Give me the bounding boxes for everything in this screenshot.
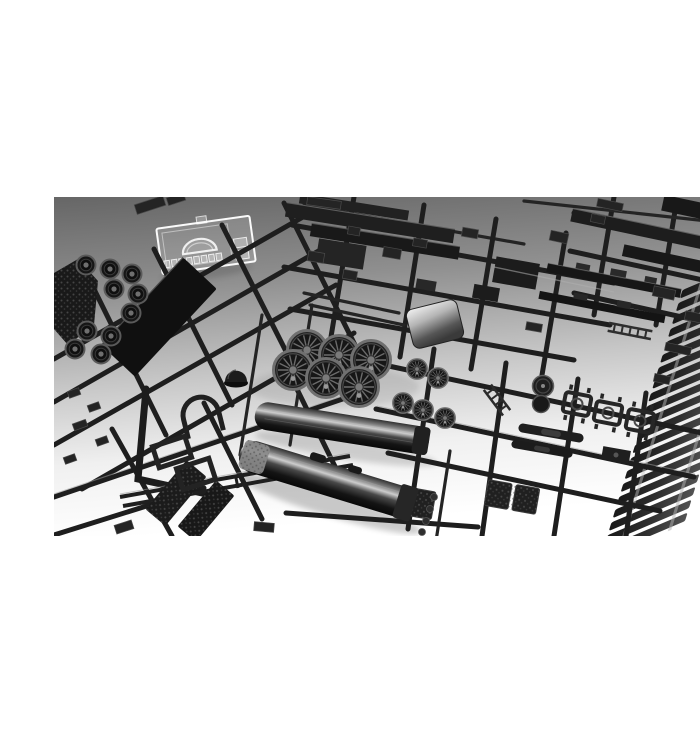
pony-wheel — [413, 400, 433, 420]
tender-wheel — [122, 304, 141, 323]
tender-wheel — [102, 327, 121, 346]
sprue-photo — [54, 197, 700, 536]
pony-wheel — [393, 393, 413, 413]
chassis-crossbar — [236, 478, 238, 488]
small-part — [347, 226, 360, 236]
driver-wheel — [340, 368, 379, 407]
valve-knob — [427, 506, 434, 513]
valve-knob — [431, 494, 438, 501]
boiler-front-disc — [533, 396, 550, 413]
tender-wheel — [105, 280, 124, 299]
tender-wheel — [77, 256, 96, 275]
product-photo-page: Product photograph of black injection-mo… — [40, 16, 700, 716]
pony-wheel — [435, 408, 455, 428]
small-part — [254, 522, 275, 533]
valve-knob — [423, 518, 430, 525]
valve-knob — [419, 529, 426, 536]
pony-wheel — [428, 368, 448, 388]
pony-wheel — [407, 359, 427, 379]
tender-wheel — [92, 345, 111, 364]
smokebox-door-hub — [541, 384, 545, 388]
photo-alt-text: Product photograph of black injection-mo… — [40, 16, 41, 17]
photo-frame — [54, 197, 700, 536]
clear-sprue-gate — [196, 216, 207, 224]
tender-wheel — [123, 265, 142, 284]
tender-wheel — [78, 322, 97, 341]
tender-wheel — [66, 340, 85, 359]
small-part — [342, 269, 357, 280]
tender-wheel — [101, 260, 120, 279]
cylinder-block-hole — [614, 453, 619, 458]
tender-wheel — [129, 285, 148, 304]
